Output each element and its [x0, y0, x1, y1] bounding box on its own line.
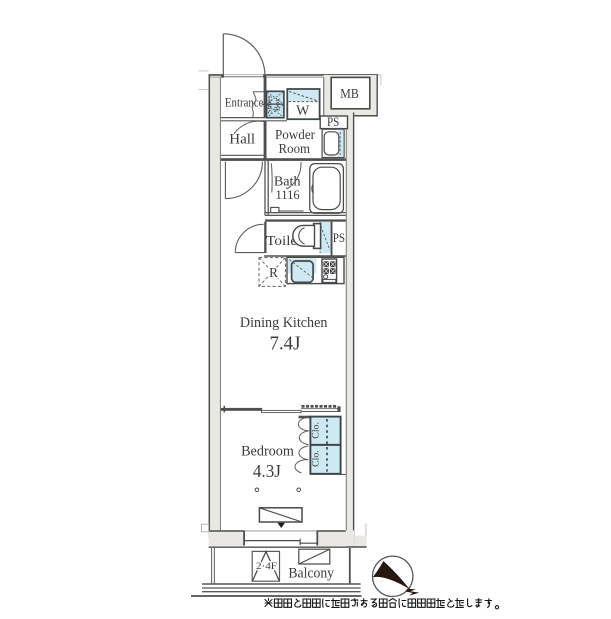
- svg-text:R: R: [269, 265, 278, 280]
- svg-text:Bedroom: Bedroom: [241, 443, 294, 459]
- svg-text:Balcony: Balcony: [288, 566, 335, 582]
- svg-text:Dining Kitchen: Dining Kitchen: [240, 315, 328, 331]
- svg-text:Box: Box: [272, 98, 281, 111]
- svg-text:Entrance: Entrance: [225, 94, 264, 109]
- svg-text:PS: PS: [333, 231, 345, 245]
- svg-text:2·4F: 2·4F: [256, 561, 277, 571]
- svg-text:Clo.: Clo.: [310, 422, 321, 439]
- svg-text:1116: 1116: [275, 187, 300, 202]
- svg-text:7.4J: 7.4J: [270, 332, 301, 354]
- svg-text:W: W: [296, 103, 310, 119]
- svg-text:4.3J: 4.3J: [253, 461, 281, 481]
- svg-text:PS: PS: [327, 115, 339, 129]
- svg-text:Clo.: Clo.: [310, 450, 321, 467]
- svg-text:Room: Room: [279, 141, 311, 156]
- svg-text:MB: MB: [340, 86, 359, 101]
- svg-text:Powder: Powder: [275, 127, 316, 142]
- svg-text:Hall: Hall: [229, 131, 255, 147]
